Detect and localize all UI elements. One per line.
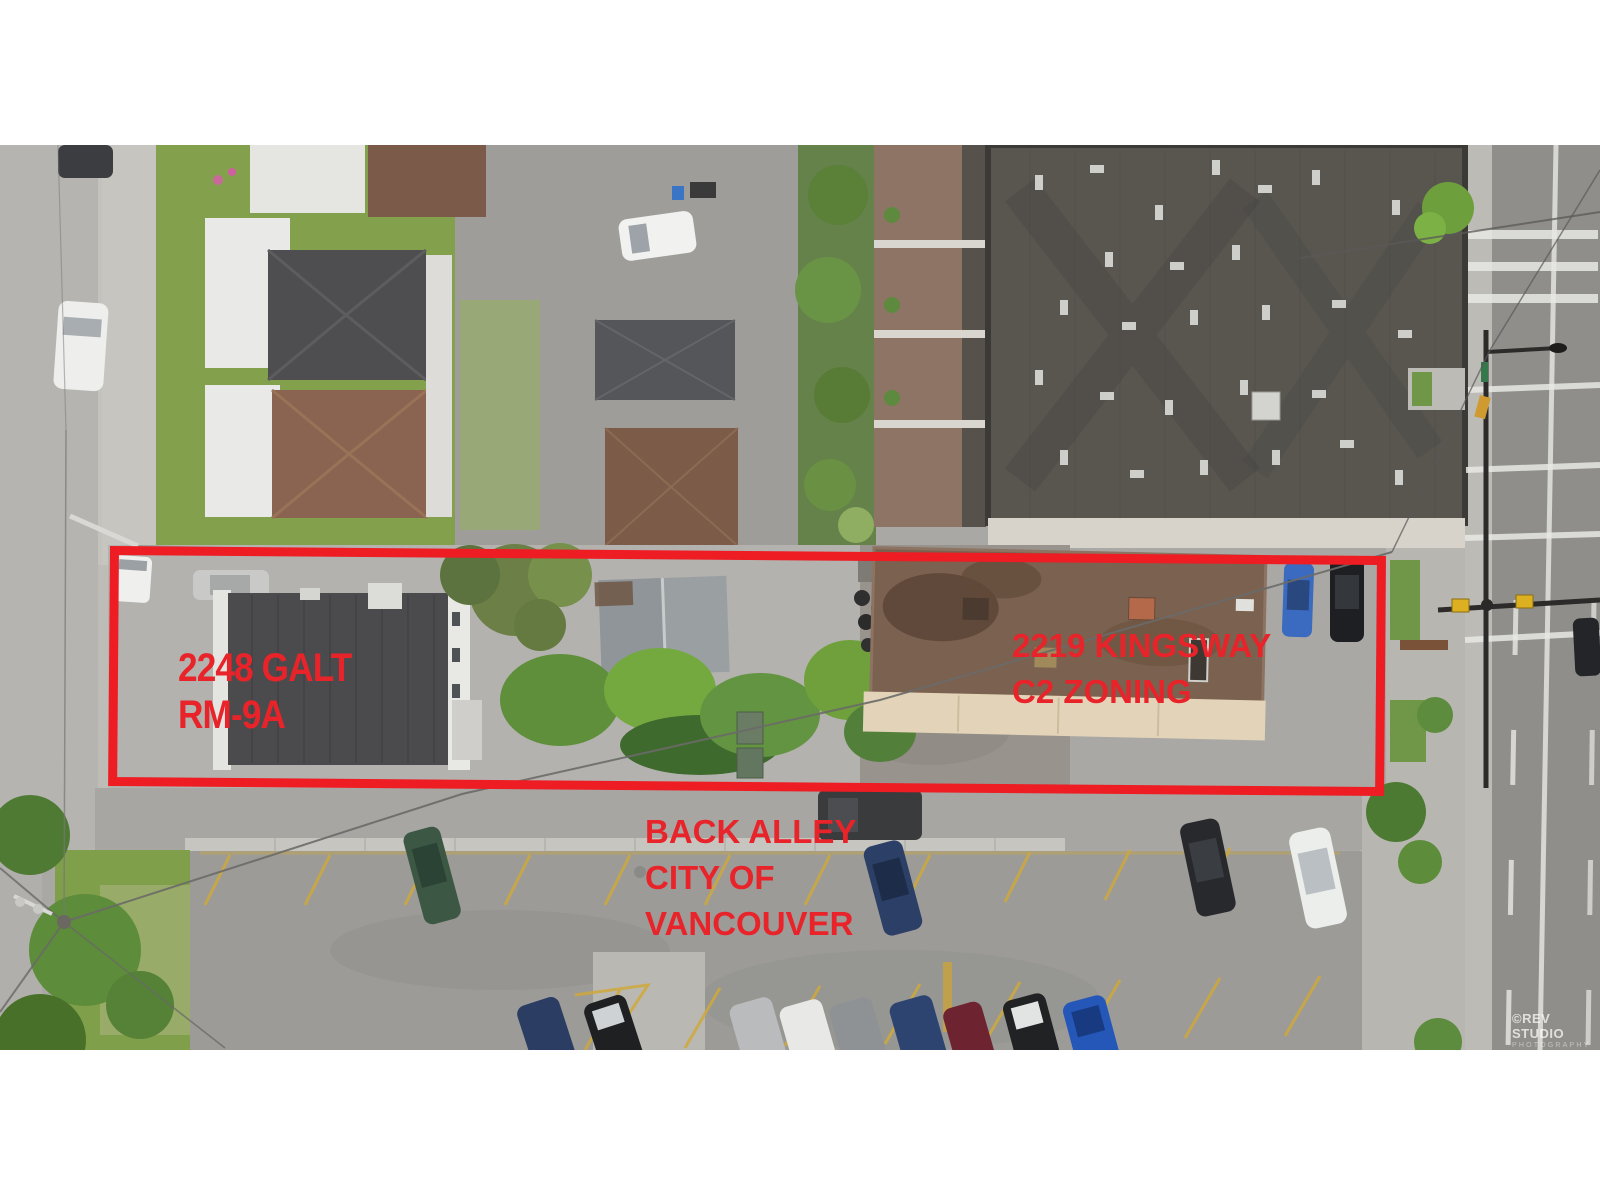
photographer-watermark: ©REV STUDIO PHOTOGRAPHY <box>1512 1011 1600 1049</box>
watermark-studio: ©REV STUDIO <box>1512 1011 1600 1041</box>
commercial-roof <box>988 145 1474 548</box>
screenshot-canvas: 2248 GALT RM-9A 2219 KINGSWAY C2 ZONING … <box>0 0 1600 1200</box>
utility-pole <box>57 915 71 929</box>
annotation-line: VANCOUVER <box>645 901 856 947</box>
townhouse-row <box>795 145 986 550</box>
residential-block <box>53 145 800 565</box>
roof-access-box <box>1252 392 1280 420</box>
annotation-line: CITY OF <box>645 855 856 901</box>
watermark-photography: PHOTOGRAPHY <box>1512 1042 1600 1049</box>
house-roof-white <box>205 385 280 517</box>
annotation-lot-right: 2219 KINGSWAY C2 ZONING <box>1012 623 1271 715</box>
annotation-line: BACK ALLEY <box>645 809 856 855</box>
annotation-line: RM-9A <box>178 692 351 739</box>
annotation-lot-left: 2248 GALT RM-9A <box>178 645 351 739</box>
annotation-line: C2 ZONING <box>1012 669 1271 715</box>
annotation-line: 2248 GALT <box>178 645 351 692</box>
house-roof-white <box>250 145 365 213</box>
annotation-back-alley: BACK ALLEY CITY OF VANCOUVER <box>645 809 856 947</box>
parked-car-white <box>53 300 109 391</box>
annotation-line: 2219 KINGSWAY <box>1012 623 1271 669</box>
storefront-canopy <box>988 518 1465 548</box>
house-roof-brown <box>368 145 486 217</box>
parked-car-dark <box>58 145 113 178</box>
moving-car-dark <box>1573 617 1600 676</box>
aerial-photo: 2248 GALT RM-9A 2219 KINGSWAY C2 ZONING … <box>0 145 1600 1050</box>
